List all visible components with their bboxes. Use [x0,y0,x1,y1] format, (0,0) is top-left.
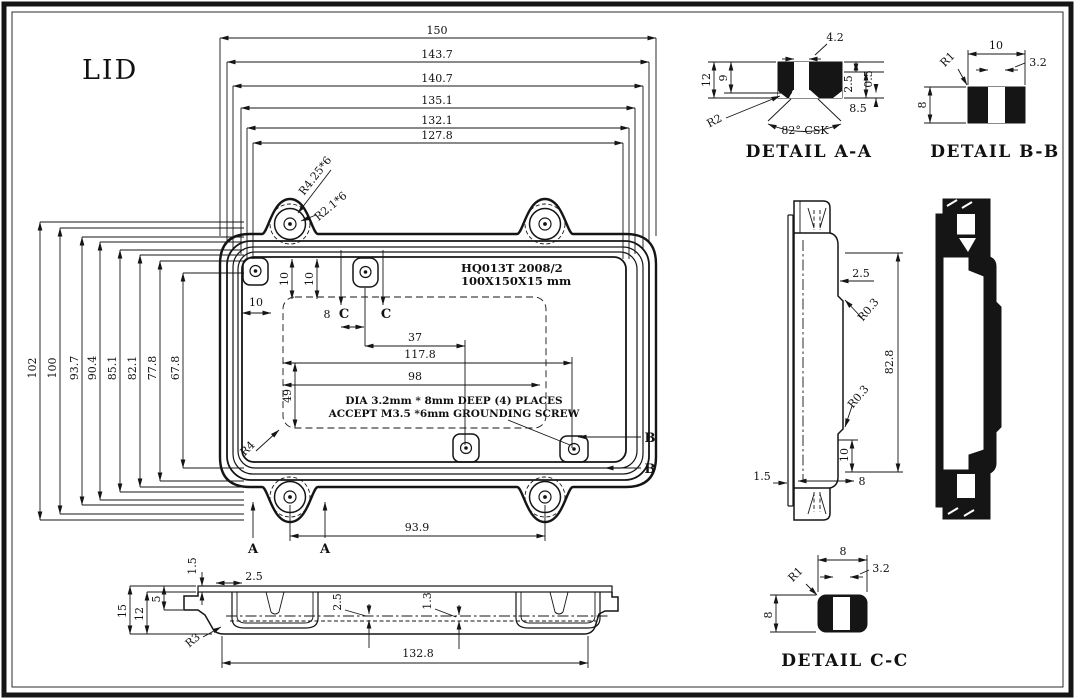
section-mark-a1: A [247,542,259,557]
side-r0-3-top: R0.3 [855,296,882,324]
dim-8: 8 [324,308,331,321]
side-dim-10: 10 [838,448,851,462]
plan-top-dimensions: 150 143.7 140.7 135.1 132.1 127.8 [220,24,656,259]
bottom-dim-132-8: 132.8 [402,647,434,660]
dim-127-8: 127.8 [421,129,453,142]
part-size: 100X150X15 mm [461,274,571,288]
side-r0-3-bot: R0.3 [845,383,872,411]
detail-cc: 8 3.2 R1 8 DETAIL C-C [762,545,909,671]
drawing-canvas: LID [0,0,1075,699]
detail-bb: 10 3.2 R1 8 DETAIL B-B [916,39,1060,162]
aa-csk-label: 82° CSK [781,124,829,137]
aa-dim-4-2: 4.2 [826,31,844,44]
dim-85-1: 85.1 [106,356,119,381]
side-dim-82-8: 82.8 [883,350,896,375]
section-mark-b2: B [645,462,656,477]
dim-37: 37 [408,331,422,344]
dim-90-4: 90.4 [86,356,99,381]
side-dim-8: 8 [859,475,866,488]
bottom-dim-2-5: 2.5 [245,570,263,583]
dim-150: 150 [427,24,448,37]
bottom-dim-t1: 2.5 [331,593,344,611]
dim-77-8: 77.8 [146,356,159,381]
dim-135-1: 135.1 [421,94,453,107]
detail-bb-title: DETAIL B-B [930,142,1060,162]
section-mark-c2: C [381,307,391,322]
aa-dim-2-5: 2.5 [842,75,855,93]
bb-dim-3-2: 3.2 [1029,56,1047,69]
detail-aa: 4.2 12 9 2.5 0.5 8.5 R2 82° CSK DETAIL A… [700,31,884,162]
dim-49: 49 [281,389,294,403]
aa-dim-0-5: 0.5 [862,70,875,88]
bb-dim-8: 8 [916,102,929,109]
callout-r4: R4 [238,439,258,459]
section-mark-a2: A [319,542,331,557]
dim-117-8: 117.8 [404,348,436,361]
dim-98: 98 [408,370,422,383]
cc-radius-r1: R1 [786,565,806,585]
aa-dim-12: 12 [700,73,713,87]
aa-dim-8-5: 8.5 [849,102,867,115]
bb-radius-r1: R1 [938,50,958,70]
bottom-radius-r3: R3 [183,630,203,650]
bottom-dim-15: 15 [116,604,129,618]
dim-100: 100 [46,358,59,379]
part-number: HQ013T 2008/2 [461,261,563,275]
dim-143-7: 143.7 [421,48,453,61]
callout-r2-1: R2.1*6 [312,189,350,224]
bb-dim-10: 10 [989,39,1003,52]
aa-radius-r2: R2 [705,112,725,131]
detail-cc-title: DETAIL C-C [781,651,909,671]
drawing-sheet: LID [0,0,1075,699]
plan-view: HQ013T 2008/2 100X150X15 mm DIA 3.2mm * … [220,199,656,522]
note-holes: DIA 3.2mm * 8mm DEEP (4) PLACES [345,395,562,407]
bottom-dim-12: 12 [133,607,146,621]
cc-dim-3-2: 3.2 [872,562,890,575]
dim-10-v2: 10 [303,272,316,286]
cc-dim-8-left: 8 [762,612,775,619]
side-dim-2-5: 2.5 [852,267,870,280]
bottom-section-view: 1.5 2.5 15 12 5 2.5 1.3 R3 132.8 [116,557,618,668]
dim-102: 102 [26,358,39,379]
side-view-section [936,199,1001,519]
dim-67-8: 67.8 [169,356,182,381]
dim-140-7: 140.7 [421,72,453,85]
dim-82-1: 82.1 [126,356,139,381]
section-mark-b1: B [645,431,656,446]
dim-10-left: 10 [249,296,263,309]
dim-132-1: 132.1 [421,114,453,127]
section-mark-c1: C [339,307,349,322]
note-grounding: ACCEPT M3.5 *6mm GROUNDING SCREW [328,408,580,420]
bottom-dim-5: 5 [150,596,163,603]
side-view-outline: 2.5 R0.3 R0.3 82.8 10 1.5 8 [753,201,903,520]
side-dim-1-5: 1.5 [753,470,771,483]
detail-aa-title: DETAIL A-A [746,142,873,162]
plan-inner-dimensions: 10 10 10 C C 8 37 117.8 98 49 93.9 A A [238,154,656,557]
page-title: LID [82,55,138,86]
dim-93-9: 93.9 [405,521,430,534]
bottom-dim-1-5: 1.5 [186,557,199,575]
aa-dim-9: 9 [717,75,730,82]
dim-10-v1: 10 [278,272,291,286]
dim-93-7: 93.7 [68,356,81,381]
plan-left-dimensions: 102 100 93.7 90.4 85.1 82.1 77.8 67.8 [26,222,244,520]
bottom-dim-t2: 1.3 [421,592,434,610]
cc-dim-8-top: 8 [840,545,847,558]
